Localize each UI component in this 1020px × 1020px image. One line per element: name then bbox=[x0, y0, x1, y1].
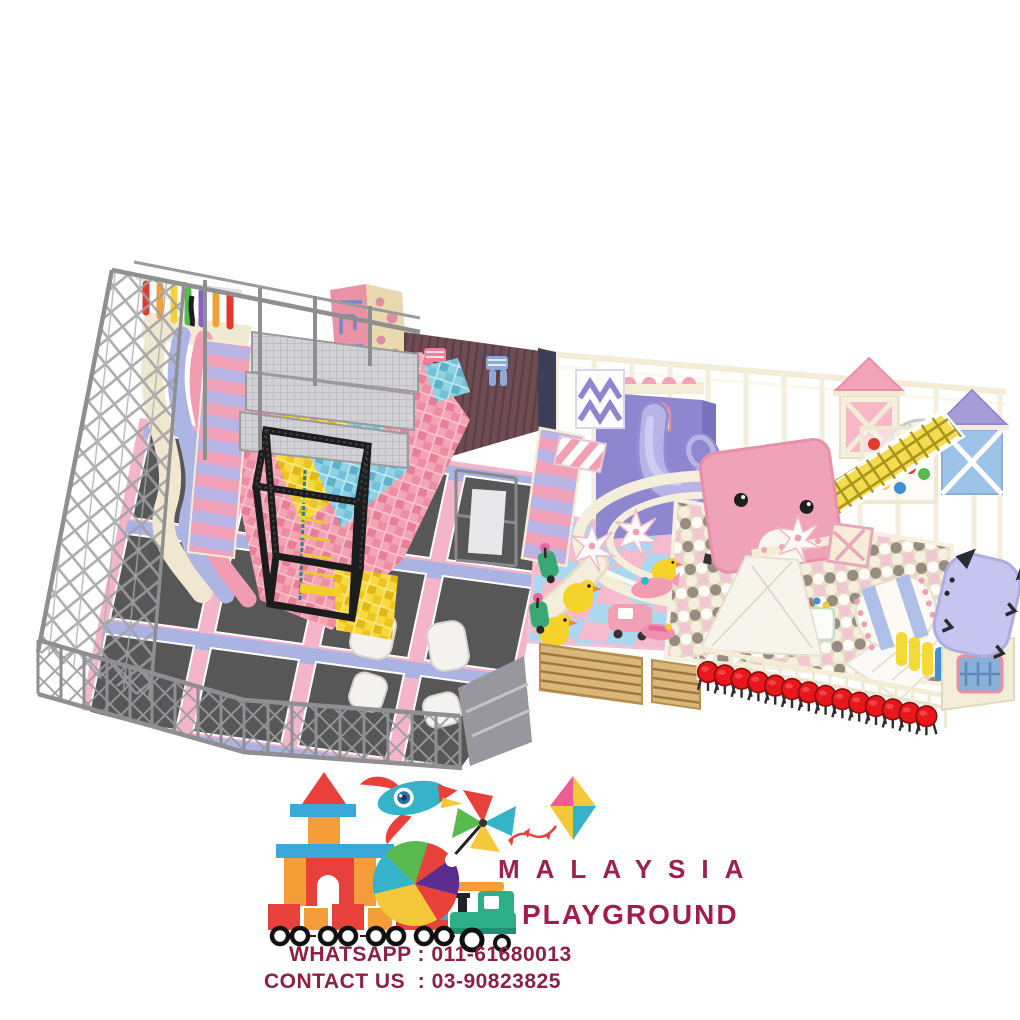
brand-name: MALAYSIA bbox=[498, 856, 759, 882]
whatsapp-number: WHATSAPP : 011-61680013 bbox=[289, 944, 572, 965]
kite-icon bbox=[508, 776, 596, 846]
cross-frame-panel bbox=[828, 523, 873, 566]
brand-tagline: PLAYGROUND bbox=[522, 901, 739, 929]
soft-play-zone bbox=[522, 348, 1020, 735]
pinwheel-icon bbox=[452, 790, 516, 858]
beach-ball-icon bbox=[373, 841, 460, 926]
chevron-panel bbox=[576, 370, 624, 428]
rocket-icon bbox=[359, 760, 467, 847]
contact-number: CONTACT US : 03-90823825 bbox=[264, 971, 561, 992]
screenshot-canvas: MALAYSIA PLAYGROUND WHATSAPP : 011-61680… bbox=[0, 0, 1020, 1020]
trampoline-park-zone bbox=[38, 262, 560, 792]
